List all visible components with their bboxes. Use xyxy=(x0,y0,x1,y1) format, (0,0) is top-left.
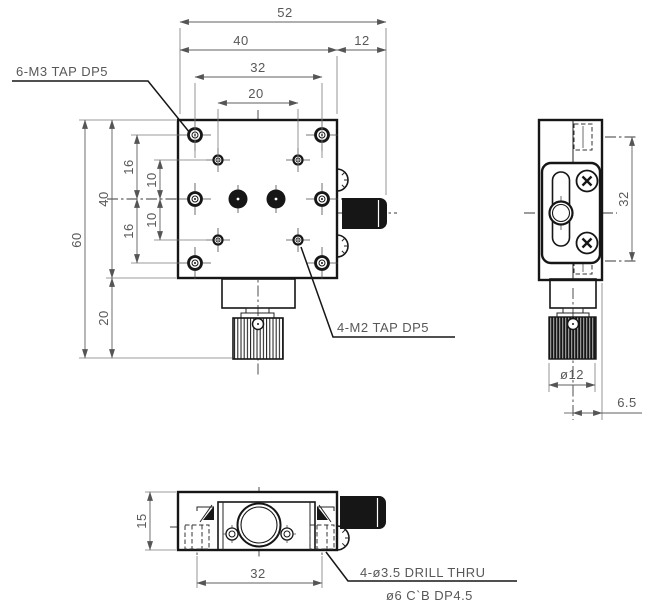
dim-mount-hole-span: 32 xyxy=(250,566,265,581)
cross-screw xyxy=(577,233,598,254)
dim-m3-span: 32 xyxy=(250,60,265,75)
bottom-view: 15 32 4-ø3.5 DRILL THRU ø6 C`B DP4.5 xyxy=(134,487,517,603)
drill-label-line2: ø6 C`B DP4.5 xyxy=(386,588,473,603)
dim-knob-ext: 12 xyxy=(354,33,369,48)
drill-label-line1: 4-ø3.5 DRILL THRU xyxy=(360,565,486,580)
dim-overall-width: 52 xyxy=(277,5,292,20)
side-bottom-knob-assembly xyxy=(549,279,596,359)
dim-m3-row-lower: 16 xyxy=(121,223,136,238)
drawing-sheet: 52 40 12 32 20 60 40 20 16 16 xyxy=(0,0,660,615)
dim-m2-span: 20 xyxy=(248,86,263,101)
dim-knob-diameter: ø12 xyxy=(560,367,584,382)
dim-side-hole-span: 32 xyxy=(616,191,631,206)
dim-thickness: 15 xyxy=(134,513,149,528)
m3-label-text: 6-M3 TAP DP5 xyxy=(16,64,108,79)
dim-body-height: 40 xyxy=(96,191,111,206)
side-view: 32 ø12 6.5 xyxy=(524,120,642,420)
dim-body-width: 40 xyxy=(233,33,248,48)
dim-m3-row-upper: 16 xyxy=(121,159,136,174)
center-bore xyxy=(238,504,281,547)
dim-m2-row-lower: 10 xyxy=(144,212,159,227)
m2-label-text: 4-M2 TAP DP5 xyxy=(337,320,429,335)
m3-label: 6-M3 TAP DP5 xyxy=(12,64,190,133)
drill-label: 4-ø3.5 DRILL THRU ø6 C`B DP4.5 xyxy=(326,552,517,603)
technical-drawing: 52 40 12 32 20 60 40 20 16 16 xyxy=(0,0,660,615)
dim-knob-height: 20 xyxy=(96,310,111,325)
side-plate xyxy=(542,163,600,263)
front-view: 52 40 12 32 20 60 40 20 16 16 xyxy=(12,5,455,377)
dim-knob-offset: 6.5 xyxy=(617,395,637,410)
bottom-knob-assembly xyxy=(222,279,295,359)
side-drive-knob xyxy=(342,198,387,229)
cross-screw xyxy=(577,171,598,192)
bottom-view-knob xyxy=(340,496,386,529)
dim-m2-row-upper: 10 xyxy=(144,172,159,187)
bottom-lock-bump xyxy=(337,526,350,550)
dim-overall-height: 60 xyxy=(69,232,84,247)
